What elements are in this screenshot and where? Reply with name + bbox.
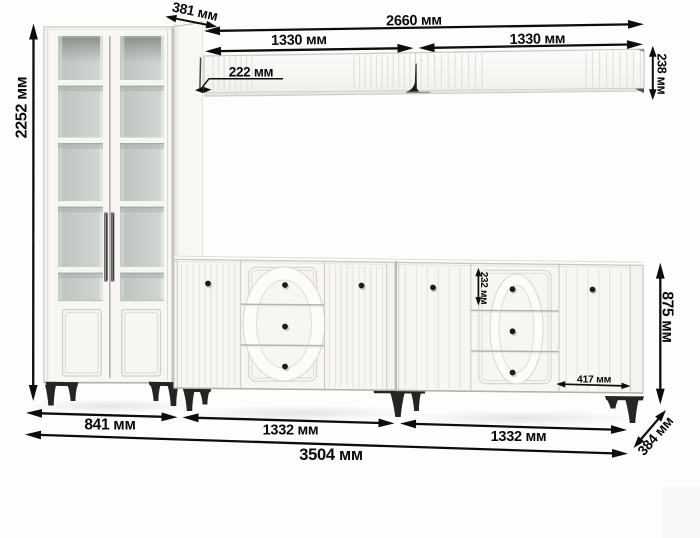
svg-text:1330 мм: 1330 мм xyxy=(509,31,565,48)
svg-text:238 мм: 238 мм xyxy=(655,53,669,94)
svg-text:417 мм: 417 мм xyxy=(577,374,612,386)
svg-text:1330 мм: 1330 мм xyxy=(271,32,327,49)
svg-text:875 мм: 875 мм xyxy=(659,291,676,342)
svg-text:1332 мм: 1332 мм xyxy=(491,429,547,445)
svg-text:841 мм: 841 мм xyxy=(84,417,135,434)
svg-text:2660 мм: 2660 мм xyxy=(386,13,442,30)
svg-text:2252 мм: 2252 мм xyxy=(14,77,31,139)
svg-text:232 мм: 232 мм xyxy=(478,272,489,304)
svg-text:3504 мм: 3504 мм xyxy=(299,446,363,464)
svg-text:222 мм: 222 мм xyxy=(229,65,274,80)
svg-text:1332 мм: 1332 мм xyxy=(263,423,319,439)
